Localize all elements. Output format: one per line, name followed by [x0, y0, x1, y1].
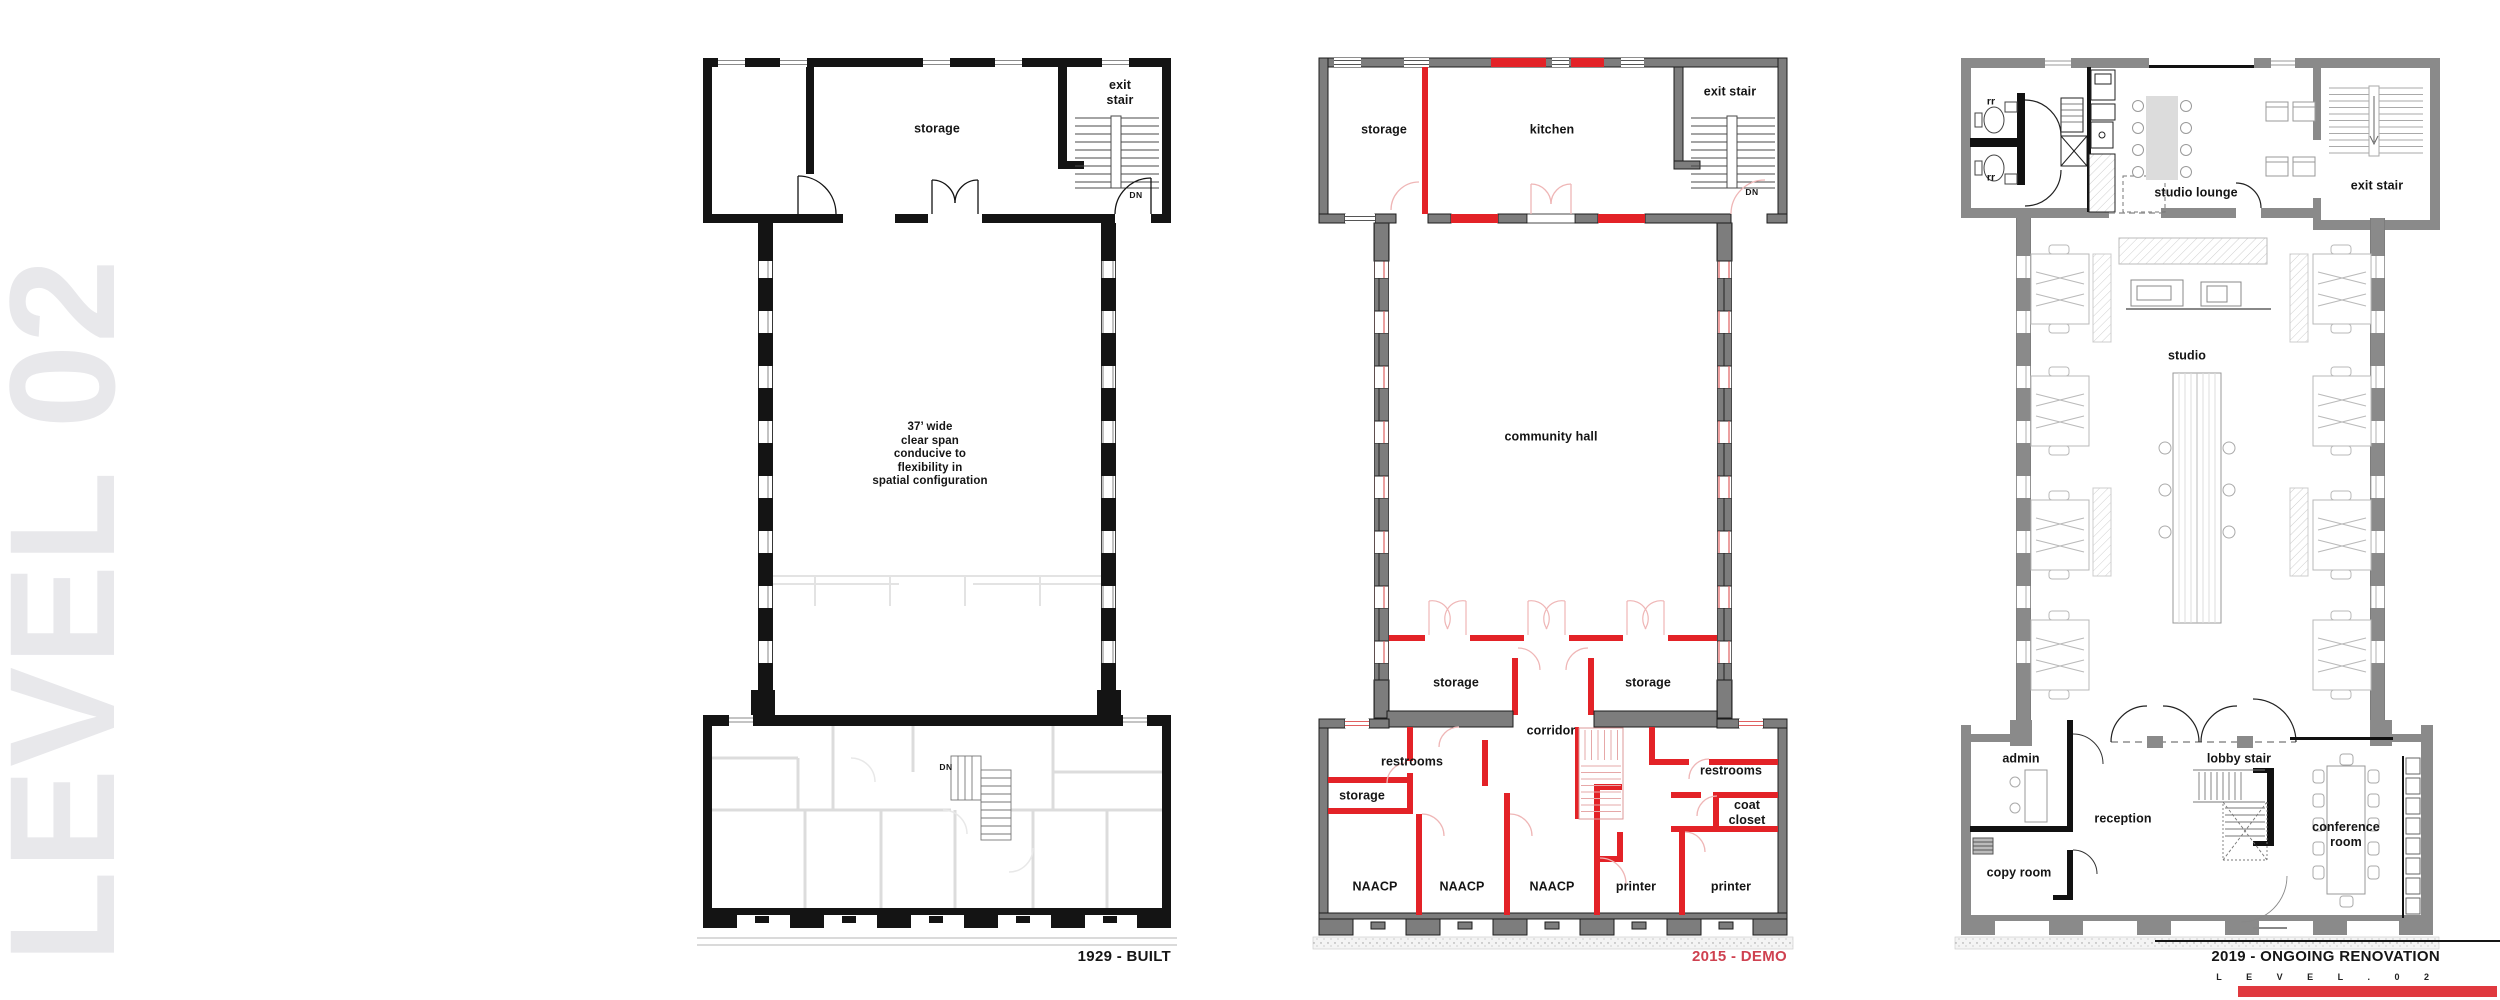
middle-section-walls: [1374, 223, 1732, 718]
room-label-storage-left: storage: [1433, 676, 1479, 691]
room-label-restrooms-right: restrooms: [1700, 764, 1762, 779]
kitchen-door-threshold: [1527, 214, 1575, 223]
plan-1929-built: storage exit stair DN 37’ wide clear spa…: [703, 58, 1171, 948]
floor-plan-1929-drawing: [703, 58, 1171, 948]
lobby-entry: [2111, 699, 2296, 748]
exit-stair-treads: [1691, 116, 1775, 188]
stair-dn-label: DN: [939, 762, 952, 772]
floor-plan-2015-drawing: [1319, 58, 1787, 948]
room-label-lobby-stair: lobby stair: [2207, 752, 2271, 767]
demo-double-door-arcs: [1429, 601, 1664, 670]
drawing-sheet: LEVEL 02: [0, 0, 2500, 1000]
room-label-naacp-3: NAACP: [1530, 880, 1575, 895]
title-block-red-bar: [2238, 986, 2497, 997]
lounge-furniture: [2133, 96, 2316, 180]
room-label-conference-room: conference room: [2312, 820, 2380, 850]
plan-2019-renovation: rr rr studio lounge exit stair studio ad…: [1961, 58, 2440, 948]
room-label-printer-1: printer: [1616, 880, 1656, 895]
room-label-storage-small: storage: [1339, 789, 1385, 804]
vestibule-doors: [2025, 100, 2061, 206]
exit-stair-treads: [1075, 116, 1159, 188]
room-label-rr-top: rr: [1987, 96, 1995, 109]
interior-stair: [951, 756, 1011, 840]
stair-dn-label: DN: [1129, 190, 1142, 200]
sidewalk-lines: [697, 938, 1177, 945]
top-wing-walls: [1961, 58, 2440, 230]
plan-2015-demo: storage kitchen exit stair DN community …: [1319, 58, 1787, 948]
room-label-community-hall: community hall: [1504, 430, 1597, 445]
room-label-admin: admin: [2002, 752, 2039, 767]
level-watermark: LEVEL 02: [0, 220, 142, 1000]
room-label-studio: studio: [2168, 349, 2206, 364]
restrooms: [1970, 93, 2025, 185]
room-label-exit-stair: exit stair: [1095, 78, 1146, 108]
clear-span-note: 37’ wide clear span conducive to flexibi…: [872, 421, 987, 489]
top-wall-windows: [1334, 58, 1644, 223]
room-label-naac p-1: NAACP: [1353, 880, 1398, 895]
room-label-exit-stair: exit stair: [2351, 179, 2403, 194]
stair-dn-label: DN: [1745, 187, 1758, 197]
demo-door-arcs-bottom: [1387, 727, 1717, 884]
partition-doors: [2073, 734, 2103, 874]
demo-red-walls-top: [1422, 58, 1645, 223]
room-label-rr-bottom: rr: [1987, 172, 1995, 185]
admin-copy-furniture: [1973, 770, 2047, 854]
caption-1929-built: 1929 - BUILT: [851, 948, 1171, 965]
caption-2019-renovation: 2019 - ONGOING RENOVATION: [2120, 948, 2440, 965]
studio-center-furniture: [2119, 238, 2271, 623]
room-label-naacp-2: NAACP: [1440, 880, 1485, 895]
caption-2015-demo: 2015 - DEMO: [1467, 948, 1787, 965]
title-block-sheet-label: L E V E L . 0 2: [2140, 972, 2440, 982]
room-label-exit-stair: exit stair: [1704, 85, 1756, 100]
exit-stair: [2329, 86, 2423, 156]
demo-stair: [1579, 728, 1623, 819]
title-block-rule: [2155, 940, 2500, 942]
ghost-partitions-middle: [773, 576, 1101, 606]
room-label-printer-2: printer: [1711, 880, 1751, 895]
room-label-storage-right: storage: [1625, 676, 1671, 691]
room-label-studio-lounge: studio lounge: [2154, 186, 2237, 201]
room-label-storage: storage: [1361, 123, 1407, 138]
ghost-partitions-bottom: [712, 726, 1162, 908]
top-wing-walls: [1319, 58, 1787, 223]
room-label-storage: storage: [914, 122, 960, 137]
room-label-copy-room: copy room: [1987, 866, 2052, 881]
room-label-restrooms-left: restrooms: [1381, 755, 1443, 770]
demo-door-arcs-top: [1391, 180, 1765, 214]
room-label-kitchen: kitchen: [1530, 123, 1574, 138]
room-label-corridor: corridor: [1527, 724, 1576, 739]
room-label-reception: reception: [2094, 812, 2151, 827]
room-label-coat-closet: coat closet: [1729, 798, 1766, 828]
